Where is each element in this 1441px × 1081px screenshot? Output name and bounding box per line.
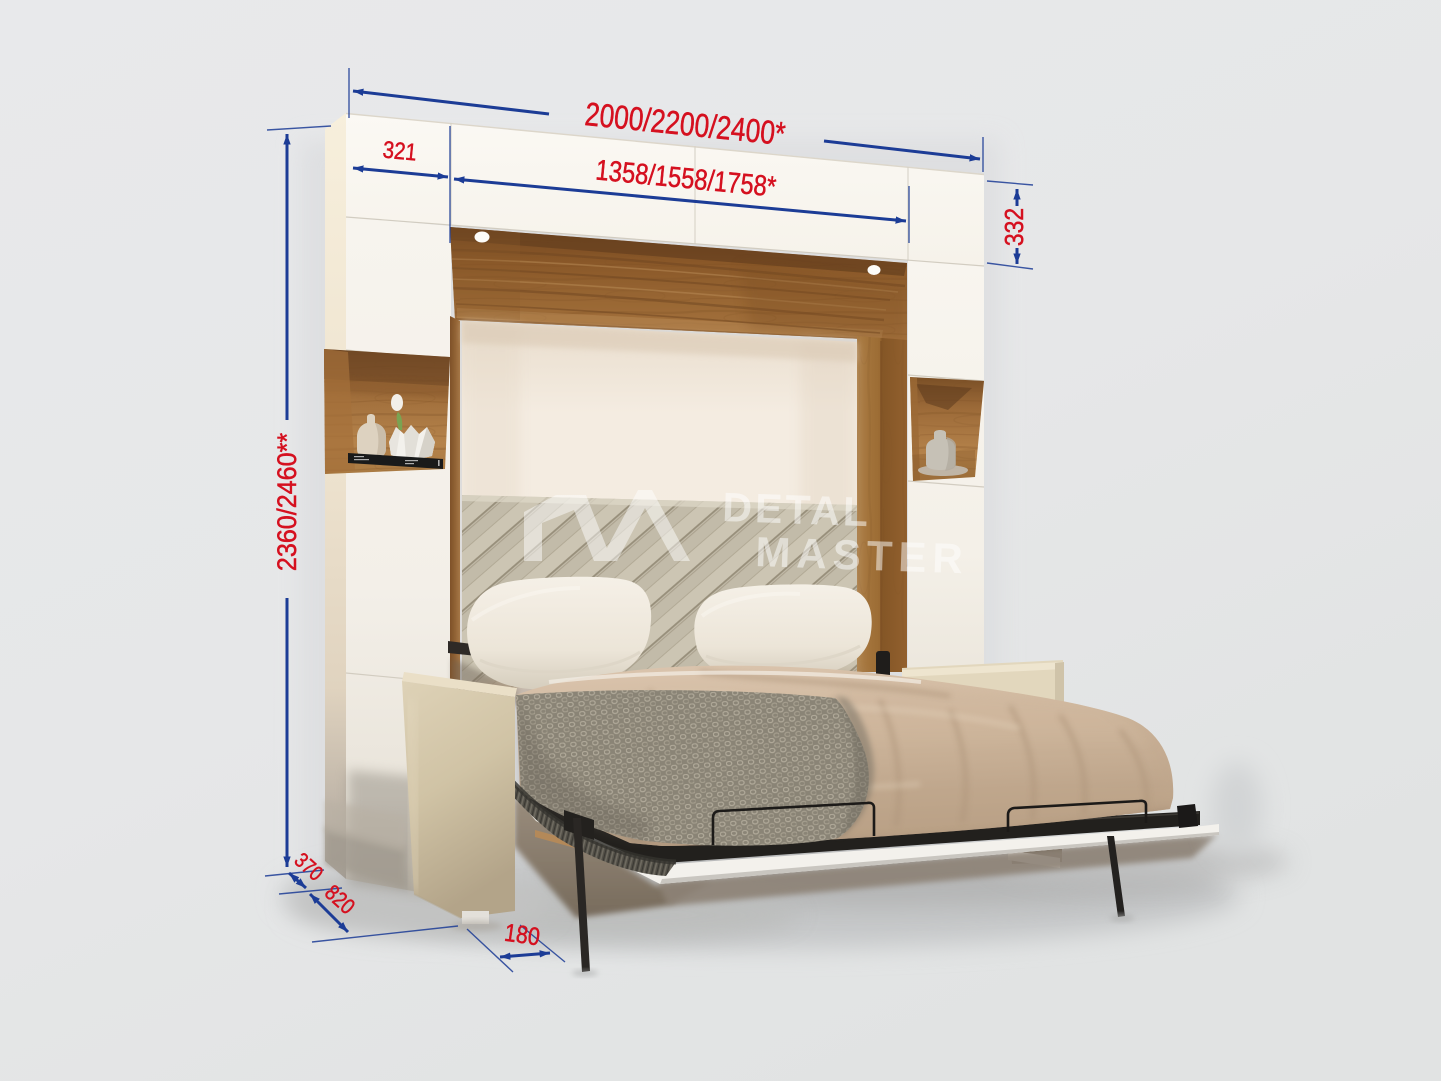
svg-text:2360/2460**: 2360/2460** bbox=[271, 433, 302, 571]
svg-text:DETAL: DETAL bbox=[722, 484, 872, 535]
svg-text:332: 332 bbox=[1001, 208, 1030, 246]
svg-text:321: 321 bbox=[382, 136, 418, 166]
svg-text:MASTER: MASTER bbox=[755, 528, 970, 582]
svg-text:180: 180 bbox=[503, 918, 542, 951]
